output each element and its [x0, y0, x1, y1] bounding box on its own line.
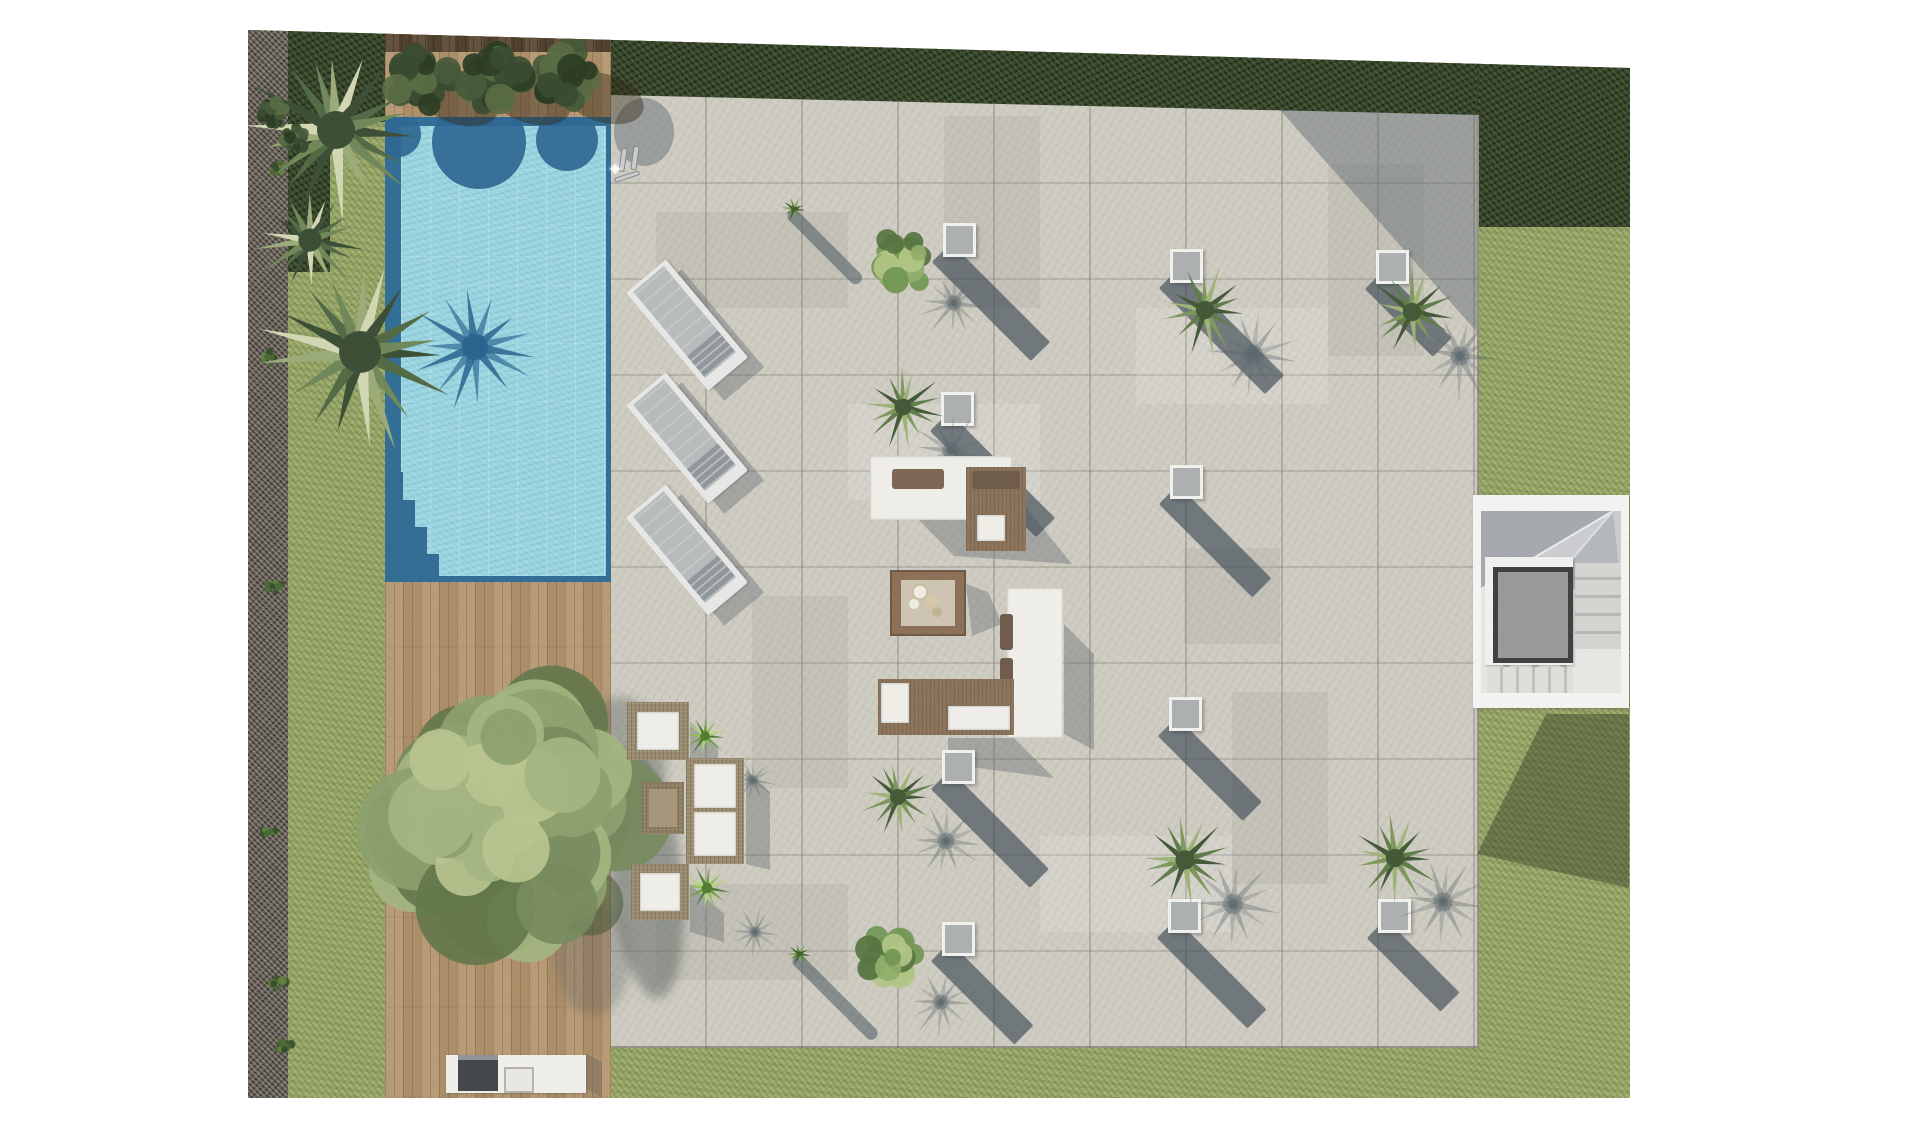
elevator-shaft	[1485, 557, 1573, 665]
sun-lounger	[630, 378, 748, 500]
lounge-armchair	[627, 702, 689, 760]
straight-steps	[1575, 563, 1621, 649]
gravel-tuft	[257, 570, 293, 606]
kitchen-counter	[446, 1055, 586, 1093]
stair-floor	[1481, 511, 1621, 693]
sink-icon	[504, 1067, 534, 1093]
pool-steps	[427, 554, 439, 582]
bottom-steps	[1487, 667, 1573, 693]
sectional-sofa	[876, 586, 1068, 738]
pool-ladder-icon: ✦	[600, 140, 652, 196]
palm-tree	[1127, 802, 1243, 918]
outdoor-kitchen	[446, 1052, 606, 1098]
planter-cube	[942, 922, 975, 956]
garden-site-plan: ✦	[248, 22, 1630, 1098]
boxwood-bush	[270, 113, 320, 163]
staircase	[1473, 495, 1629, 708]
gravel-tuft	[259, 965, 295, 1001]
accent-plant	[779, 934, 819, 974]
palm-tree	[848, 747, 948, 847]
pool-steps	[385, 472, 403, 582]
palm-tree	[1149, 254, 1261, 366]
deck-tree	[353, 656, 669, 972]
planter-cube	[1170, 465, 1203, 499]
hedge-right	[1477, 22, 1630, 227]
side-table	[642, 782, 684, 834]
lounge-armchair	[631, 864, 689, 920]
sun-lounger	[630, 490, 748, 612]
gravel-tuft	[251, 815, 287, 851]
daybed-sofa	[870, 456, 1070, 576]
palm-tree	[847, 912, 939, 1004]
deck-lounge-set	[627, 702, 757, 922]
gravel-tuft	[266, 1030, 302, 1066]
palm-tree	[1339, 802, 1451, 914]
planter-cube	[1169, 697, 1202, 731]
palm-tree	[1356, 256, 1468, 368]
lounge-sofa	[686, 758, 744, 864]
fan-palm-tree	[242, 172, 378, 308]
sun-lounger	[630, 265, 748, 387]
elevator-cab	[1493, 567, 1573, 663]
pool-steps	[415, 527, 427, 582]
grill-icon	[458, 1055, 498, 1091]
pool-steps	[403, 500, 415, 582]
kitchen-shadow	[586, 1053, 602, 1097]
palm-tree	[860, 213, 952, 305]
water-sparkle-icon: ✦	[608, 160, 622, 180]
accent-plant	[774, 189, 814, 229]
boxwood-bush	[521, 31, 617, 127]
palm-tree	[851, 355, 955, 459]
